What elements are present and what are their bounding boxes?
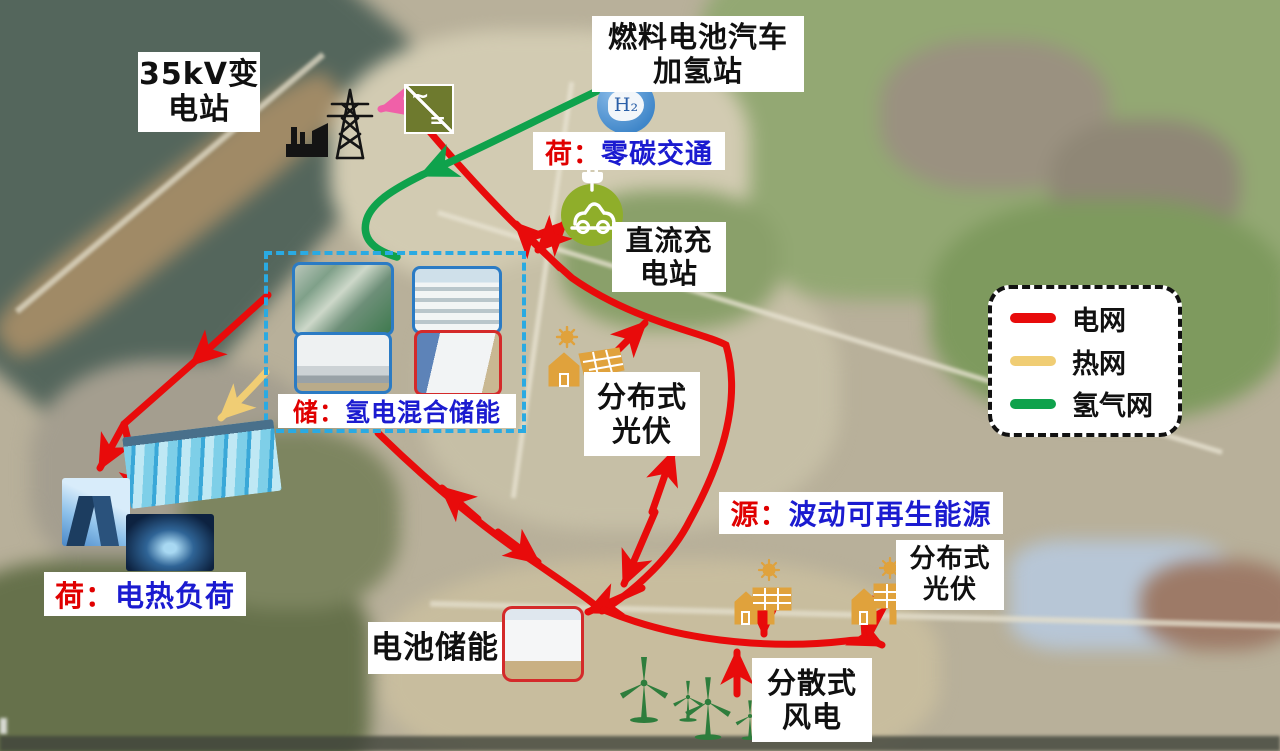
substation-label-line1: 35kV变 — [138, 57, 260, 92]
legend-hydrogen-label: 氢气网 — [1072, 384, 1153, 423]
pv-center-label-line1: 分布式 — [584, 380, 700, 414]
legend-grid-label: 电网 — [1072, 299, 1126, 338]
pv-center-label: 分布式 光伏 — [584, 372, 700, 456]
storage-label-prefix: 储： — [293, 393, 345, 429]
pv-right-label-line2: 光伏 — [896, 575, 1004, 606]
zero-carbon-text: 零碳交通 — [601, 132, 713, 171]
satellite-map-canvas: ~ = H₂ — [0, 0, 1280, 751]
h2-station-label-line1: 燃料电池汽车 — [592, 20, 804, 54]
legend-item-hydrogen: 氢气网 — [1010, 384, 1160, 423]
heat-network-lines — [221, 372, 266, 418]
zero-carbon-label: 荷：零碳交通 — [533, 132, 725, 170]
source-label-text: 波动可再生能源 — [789, 493, 992, 533]
battery-label-text: 电池储能 — [368, 630, 502, 667]
grid-storage-battery-curve — [378, 433, 602, 611]
hydrogen-line-swatch — [1010, 399, 1056, 409]
inverter-icon: ~ = — [404, 84, 454, 134]
transmission-tower-icon — [282, 82, 378, 162]
solar-house-icon — [733, 558, 797, 636]
grid-line-to-loads — [192, 295, 268, 364]
inverter-ac-symbol: ~ — [411, 84, 429, 109]
legend: 电网 热网 氢气网 — [988, 285, 1182, 437]
heat-load-text: 电热负荷 — [115, 573, 235, 615]
grid-line-to-loads2 — [124, 364, 192, 424]
storage-label-text: 氢电混合储能 — [345, 393, 501, 429]
dc-charging-label-line1: 直流充 — [612, 224, 726, 257]
heat-load-label: 荷：电热负荷 — [44, 572, 246, 616]
heat-line-swatch — [1010, 356, 1056, 366]
battery-storage-photo — [502, 606, 584, 682]
h2-station-label-line2: 加氢站 — [592, 54, 804, 88]
h2-symbol-text: H₂ — [614, 94, 638, 116]
h2-station-label: 燃料电池汽车 加氢站 — [592, 16, 804, 92]
h2-symbol: H₂ — [608, 90, 644, 121]
hydrogen-tanks-photo — [412, 266, 502, 334]
legend-heat-label: 热网 — [1072, 342, 1126, 381]
grid-arrow-up-diagonal — [652, 452, 673, 512]
grid-arrow-to-storage — [442, 488, 478, 519]
wind-label-line1: 分散式 — [752, 666, 872, 700]
grid-arrow-into-battery — [588, 588, 642, 612]
battery-container-photo — [414, 330, 502, 396]
battery-label: 电池储能 — [368, 622, 502, 674]
zero-carbon-prefix: 荷： — [545, 132, 601, 171]
pv-center-label-line2: 光伏 — [584, 414, 700, 448]
dc-charging-label-line2: 电站 — [612, 257, 726, 290]
wind-label-line2: 风电 — [752, 700, 872, 734]
datacenter-photo — [126, 514, 214, 571]
grid-arrow-to-towers — [100, 424, 124, 468]
pv-right-label: 分布式 光伏 — [896, 540, 1004, 610]
dc-charging-label: 直流充 电站 — [612, 222, 726, 292]
substation-label-line2: 电站 — [138, 92, 260, 127]
grid-line-swatch — [1010, 313, 1056, 323]
legend-item-grid: 电网 — [1010, 299, 1160, 338]
electrolyzer-photo — [292, 262, 394, 336]
heat-arrow-to-pool — [221, 372, 266, 418]
inverter-dc-symbol: = — [429, 108, 446, 132]
substation-label: 35kV变 电站 — [138, 52, 260, 132]
source-label-prefix: 源： — [730, 493, 788, 533]
hydrogen-curl-to-storage — [365, 175, 422, 257]
grid-arrow-to-battery-area — [498, 532, 538, 562]
container-storage-photo — [294, 332, 392, 394]
legend-item-heat: 热网 — [1010, 342, 1160, 381]
wind-label: 分散式 风电 — [752, 658, 872, 742]
storage-label: 储：氢电混合储能 — [278, 394, 516, 428]
source-label: 源：波动可再生能源 — [719, 492, 1003, 534]
skyscraper-photo — [62, 478, 130, 546]
heat-load-prefix: 荷： — [55, 573, 115, 615]
pv-right-label-line1: 分布式 — [896, 544, 1004, 575]
